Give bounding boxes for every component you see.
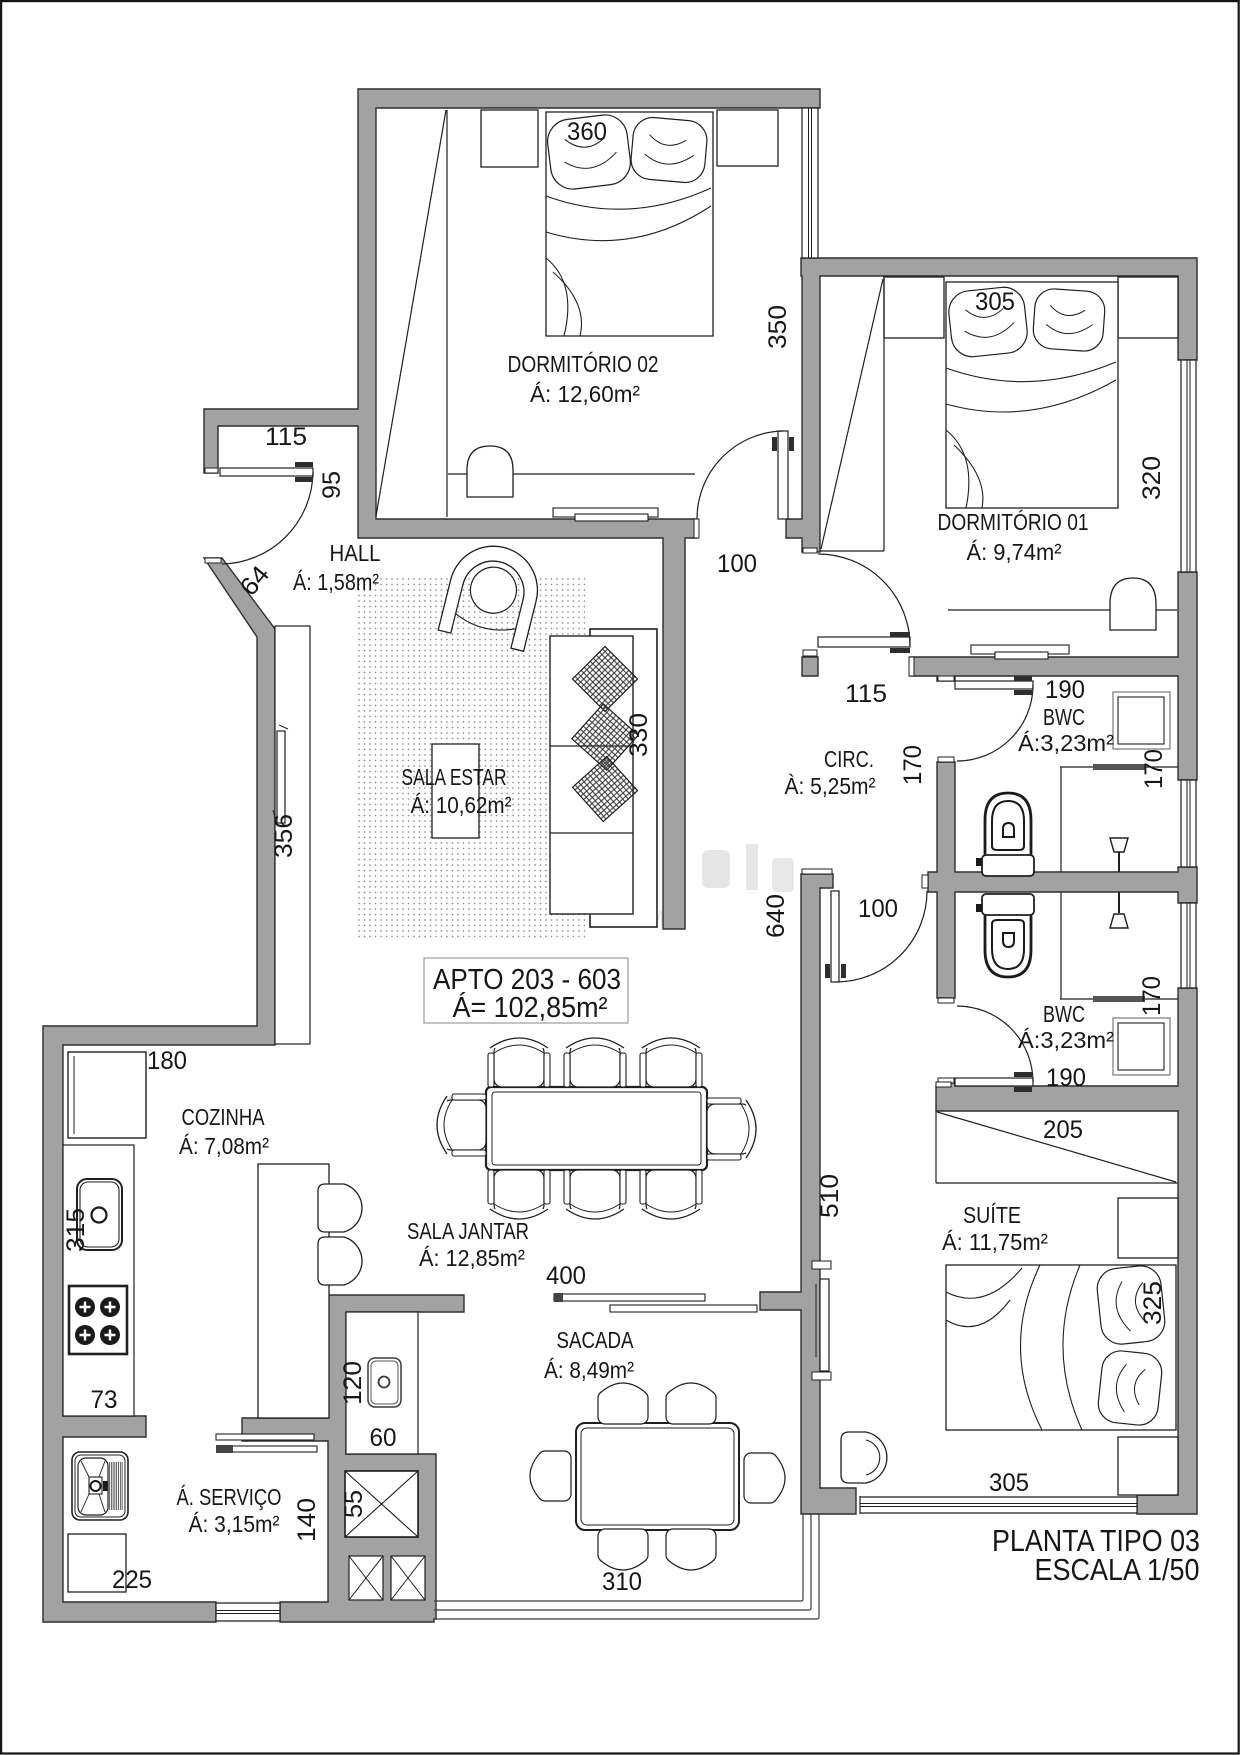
svg-text:640: 640 [762,894,790,938]
svg-text:À: 5,25m²: À: 5,25m² [785,773,876,799]
svg-text:55: 55 [340,1490,368,1518]
svg-text:305: 305 [989,1469,1029,1497]
svg-text:180: 180 [147,1047,187,1075]
svg-text:Á= 102,85m²: Á= 102,85m² [453,991,608,1024]
svg-text:ESCALA 1/50: ESCALA 1/50 [1035,1552,1200,1587]
svg-text:DORMITÓRIO 02: DORMITÓRIO 02 [508,351,659,377]
svg-text:510: 510 [816,1174,844,1218]
svg-text:Á:3,23m²: Á:3,23m² [1018,1027,1114,1053]
svg-text:73: 73 [91,1386,118,1414]
svg-text:Á: 3,15m²: Á: 3,15m² [189,1511,280,1537]
svg-text:170: 170 [899,745,927,785]
svg-text:COZINHA: COZINHA [182,1104,265,1130]
svg-text:320: 320 [1138,456,1166,500]
svg-text:HALL: HALL [330,540,381,566]
svg-text:Á: 7,08m²: Á: 7,08m² [179,1133,269,1159]
svg-text:400: 400 [546,1262,586,1290]
svg-text:325: 325 [1139,1281,1167,1325]
svg-text:190: 190 [1045,676,1085,704]
svg-text:Á: 11,75m²: Á: 11,75m² [942,1229,1048,1255]
svg-text:BWC: BWC [1043,704,1085,730]
svg-text:SACADA: SACADA [557,1327,634,1353]
svg-text:100: 100 [717,550,757,578]
svg-text:356: 356 [270,814,298,858]
svg-text:100: 100 [858,895,898,923]
svg-text:170: 170 [1138,976,1166,1016]
svg-text:115: 115 [845,680,887,708]
svg-text:SALA ESTAR: SALA ESTAR [402,764,507,790]
svg-text:360: 360 [567,118,607,146]
svg-text:330: 330 [625,713,653,757]
svg-text:225: 225 [112,1566,152,1594]
svg-text:115: 115 [265,423,307,451]
svg-text:Á:3,23m²: Á:3,23m² [1018,730,1114,756]
svg-text:Á. SERVIÇO: Á. SERVIÇO [177,1484,282,1510]
svg-text:DORMITÓRIO 01: DORMITÓRIO 01 [938,509,1089,535]
svg-text:Á: 8,49m²: Á: 8,49m² [544,1357,634,1383]
svg-text:BWC: BWC [1043,1001,1085,1027]
svg-text:190: 190 [1046,1064,1086,1092]
svg-text:60: 60 [370,1424,397,1452]
svg-text:305: 305 [975,288,1015,316]
svg-text:310: 310 [602,1568,642,1596]
svg-text:95: 95 [318,471,346,499]
svg-text:315: 315 [62,1208,90,1252]
svg-text:Á: 9,74m²: Á: 9,74m² [967,539,1062,565]
svg-text:205: 205 [1043,1116,1083,1144]
svg-text:Á: 12,60m²: Á: 12,60m² [530,381,640,407]
svg-text:Á: 10,62m²: Á: 10,62m² [411,792,512,818]
svg-text:SALA JANTAR: SALA JANTAR [407,1218,529,1244]
svg-text:CIRC.: CIRC. [824,746,874,772]
svg-text:Á: 12,85m²: Á: 12,85m² [419,1245,525,1271]
svg-text:140: 140 [293,1498,321,1542]
svg-text:Á: 1,58m²: Á: 1,58m² [293,569,379,595]
svg-text:120: 120 [339,1361,367,1405]
svg-text:350: 350 [764,305,792,349]
svg-text:SUÍTE: SUÍTE [963,1202,1021,1228]
svg-text:170: 170 [1140,749,1168,789]
